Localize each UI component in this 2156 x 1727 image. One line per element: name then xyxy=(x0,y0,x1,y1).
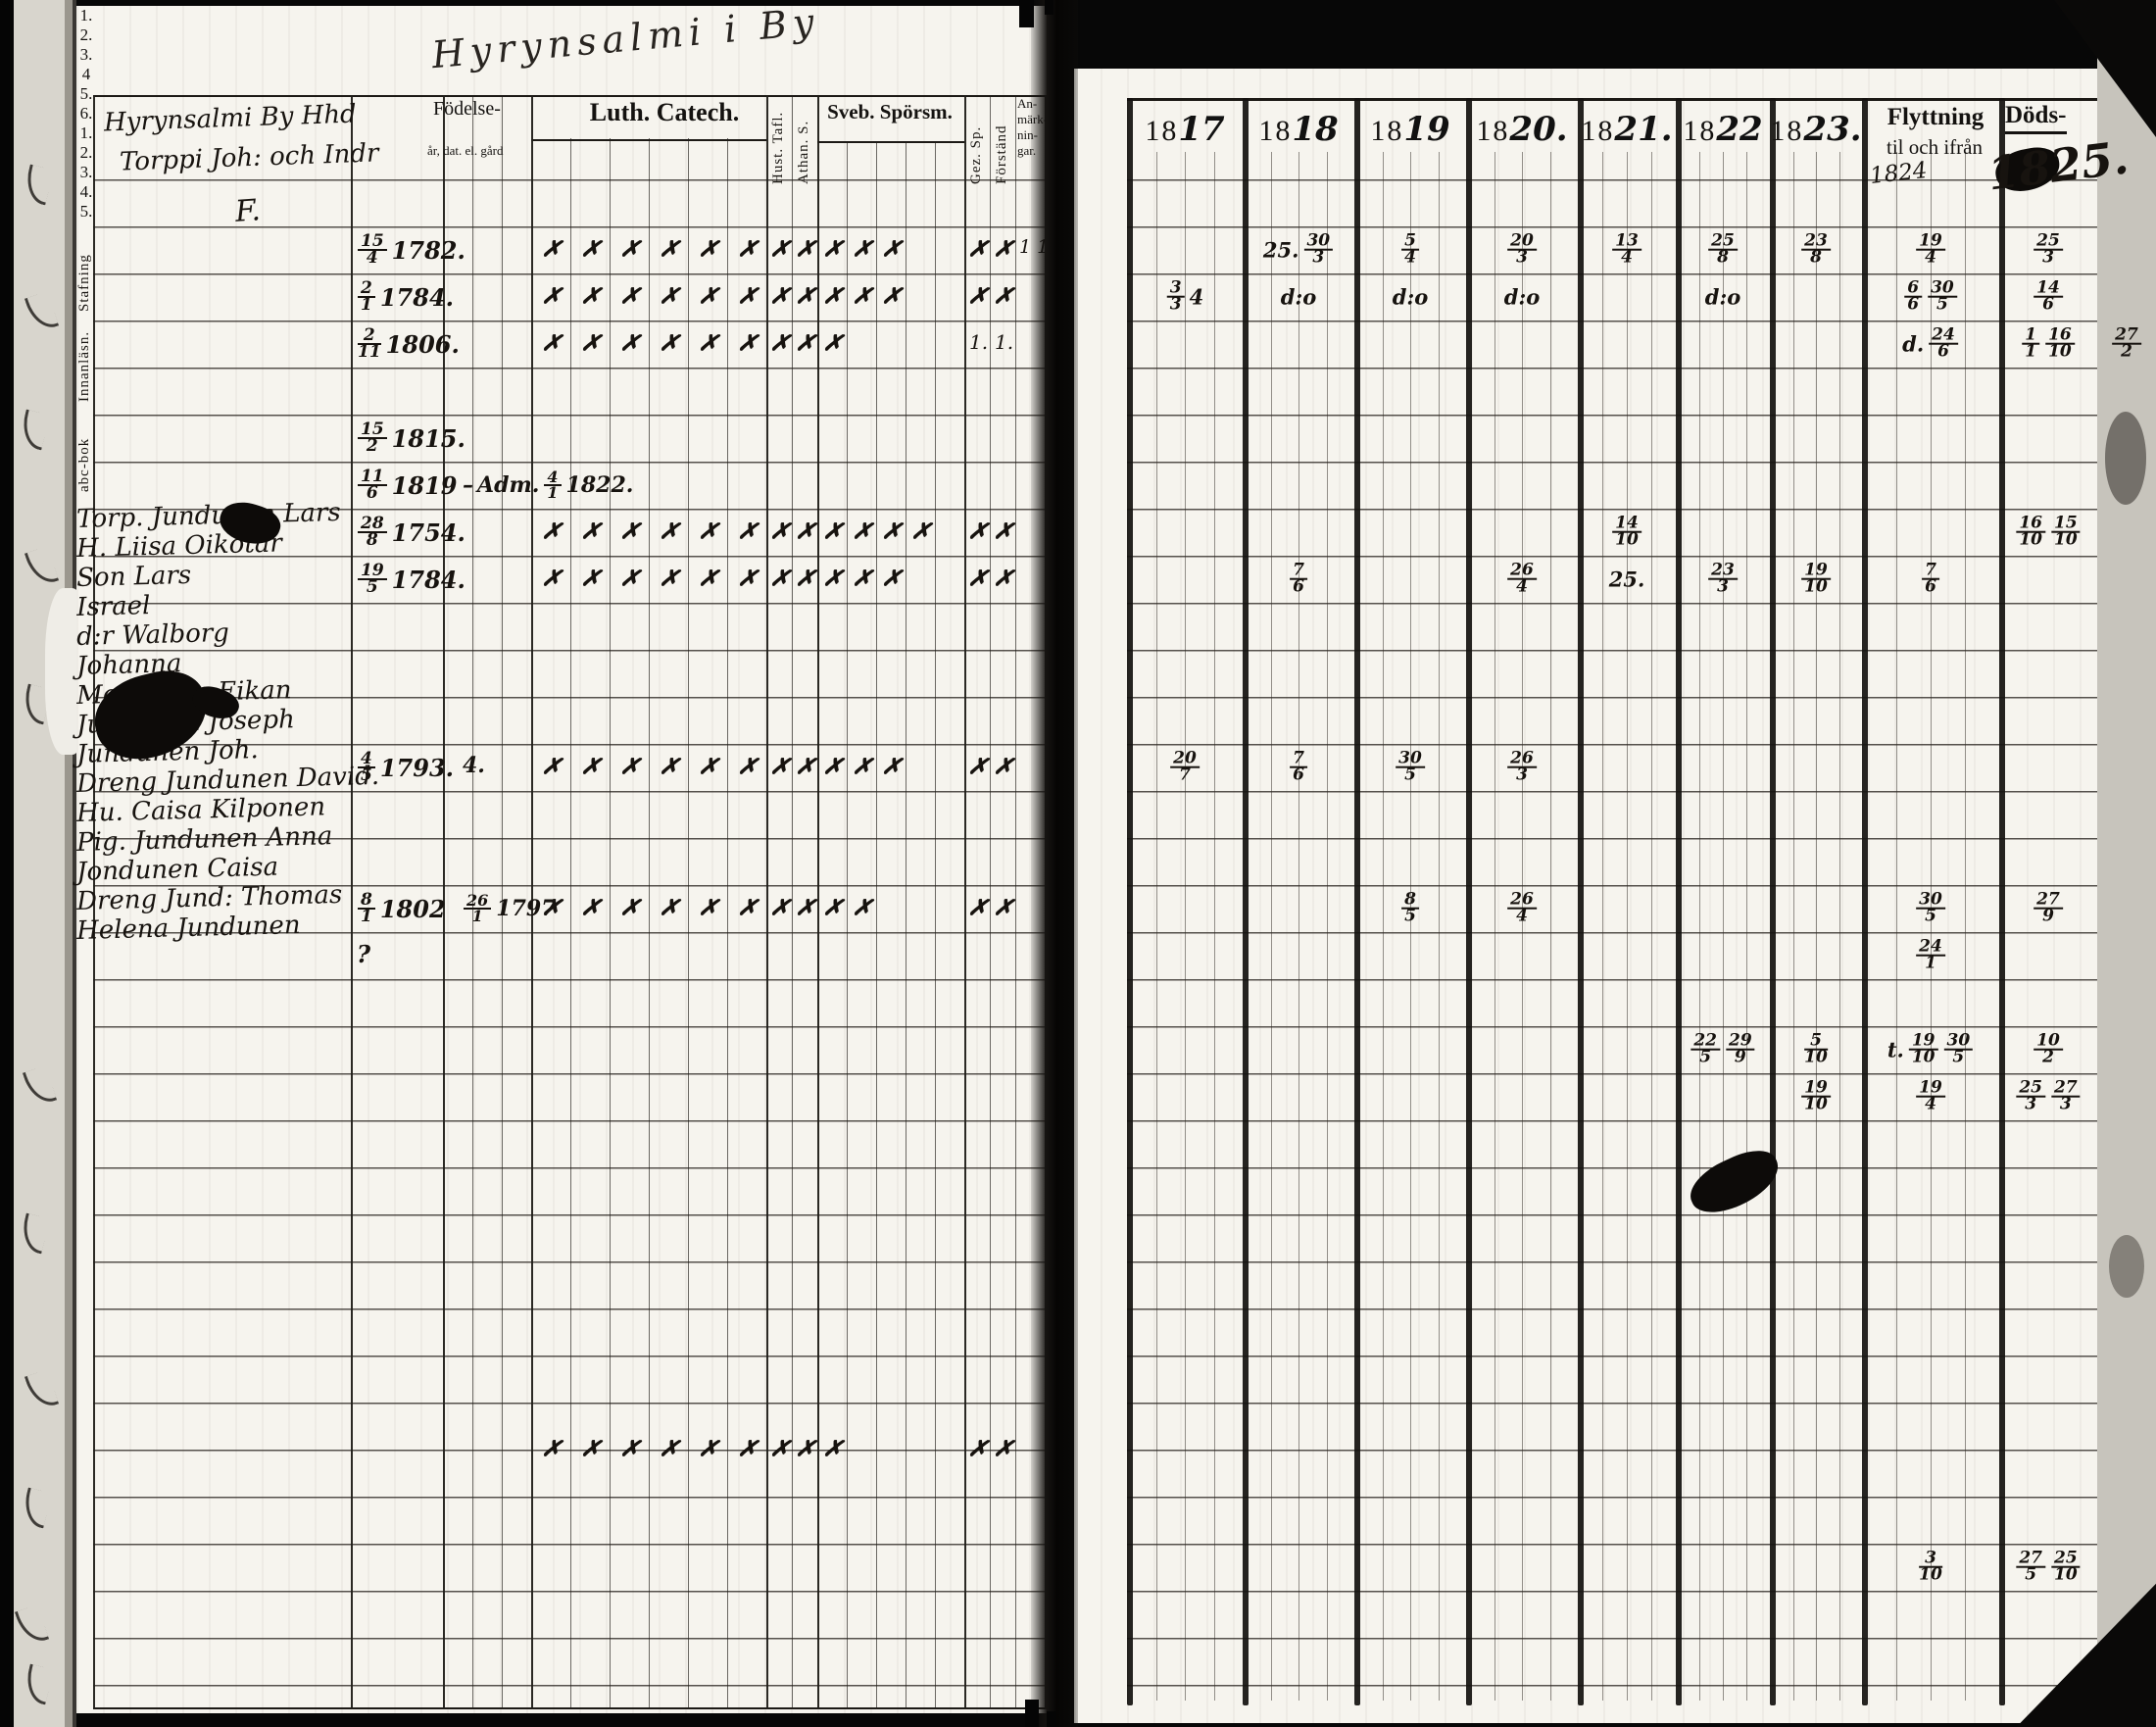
check-mark: ✗ xyxy=(737,327,759,358)
sveb-underline xyxy=(817,141,964,143)
date-entry: 194 xyxy=(1913,234,1948,267)
year-printed: 18 xyxy=(1476,115,1509,147)
date-entry: d:o xyxy=(1391,285,1430,310)
year-subcolumn-line xyxy=(1214,152,1215,1701)
year-subcolumn-line xyxy=(1298,152,1299,1701)
date-fraction: 45 xyxy=(358,752,375,784)
year-script: 21. xyxy=(1614,110,1672,149)
date-fraction: 207 xyxy=(1170,752,1200,784)
date-fraction: 33 xyxy=(1167,281,1185,314)
date-fraction: 261 xyxy=(464,894,491,924)
check-mark: ✗ xyxy=(822,516,845,546)
check-mark: ✗ xyxy=(659,1433,681,1463)
date-entry: 25.303 xyxy=(1261,234,1336,267)
check-mark: ✗ xyxy=(795,516,817,546)
year-column-header: 1821. xyxy=(1581,110,1672,149)
date-entry: 305 xyxy=(1393,752,1428,784)
check-mark: ✗ xyxy=(580,516,603,546)
check-mark: ✗ xyxy=(795,233,817,264)
left-column-line xyxy=(906,143,906,1709)
date-text: 1806. xyxy=(386,330,460,359)
year-column-header: 1820. xyxy=(1476,110,1567,149)
margin-scribble xyxy=(18,1213,50,1255)
date-entry: t.1910305 xyxy=(1886,1034,1976,1066)
date-entry: 134 xyxy=(1609,234,1644,267)
date-fraction: 275 xyxy=(2016,1552,2045,1584)
date-text: – xyxy=(463,472,473,498)
margin-scribble xyxy=(24,546,59,588)
date-fraction: 154 xyxy=(358,234,387,267)
check-mark: ✗ xyxy=(698,563,720,593)
date-fraction: 194 xyxy=(1916,1081,1945,1113)
margin-scribble xyxy=(22,1664,54,1705)
check-mark: ✗ xyxy=(822,1433,845,1463)
check-mark: ✗ xyxy=(769,280,792,311)
year-column-header: 1822 xyxy=(1683,110,1762,149)
date-text: 1754. xyxy=(392,518,465,547)
check-mark: ✗ xyxy=(737,516,759,546)
year-printed: 18 xyxy=(1581,115,1614,147)
date-entry: 194 xyxy=(1913,1081,1948,1113)
year-subcolumn-line xyxy=(1522,152,1523,1701)
date-fraction: 203 xyxy=(1507,234,1537,267)
date-text: 1784. xyxy=(392,566,465,594)
check-mark: ✗ xyxy=(769,563,792,593)
date-entry: 334 xyxy=(1164,281,1205,314)
skill-column-header-abc: abc-bok xyxy=(76,402,93,492)
date-text: 1782. xyxy=(392,236,465,265)
year-subcolumn-line xyxy=(1839,152,1840,1701)
person-birth-date: 2881754. xyxy=(355,517,467,549)
check-mark: ✗ xyxy=(580,233,603,264)
person-note: 4. xyxy=(461,753,487,778)
check-mark: ✗ xyxy=(698,327,720,358)
date-fraction: 1510 xyxy=(2051,517,2081,549)
gutter-clasp-top xyxy=(1019,0,1034,27)
date-fraction: 11 xyxy=(2022,328,2039,361)
date-fraction: 211 xyxy=(358,328,381,361)
date-fraction: 246 xyxy=(1929,328,1958,361)
date-fraction: 194 xyxy=(1916,234,1945,267)
year-subcolumn-line xyxy=(1965,152,1966,1701)
right-header-top-line xyxy=(1127,98,2097,101)
margin-scribble xyxy=(22,165,54,206)
date-text: d:o xyxy=(1504,285,1540,310)
margin-scribble xyxy=(23,1065,57,1108)
date-fraction: 66 xyxy=(1904,281,1922,314)
date-text: 25. xyxy=(1609,567,1645,592)
person-birth-date: 1541782. xyxy=(355,234,467,267)
date-entry: 25. xyxy=(1607,567,1647,592)
left-column-line xyxy=(876,143,877,1709)
date-fraction: 273 xyxy=(2051,1081,2081,1113)
date-entry: 146 xyxy=(2031,281,2066,314)
check-mark: ✗ xyxy=(541,280,563,311)
date-fraction: 264 xyxy=(1507,564,1537,596)
date-entry: 102 xyxy=(2031,1034,2066,1066)
year-script: 17 xyxy=(1178,110,1224,149)
household-heading-initial: F. xyxy=(234,193,262,229)
skill-column-header-st: Stafning xyxy=(76,222,93,312)
date-entry: 225299 xyxy=(1688,1034,1757,1066)
year-script: 22 xyxy=(1716,110,1762,149)
right-page: 1817181818191820.1821.18221823.25.303542… xyxy=(1074,69,2115,1723)
check-mark: ✗ xyxy=(795,563,817,593)
date-entry: d:o xyxy=(1703,285,1742,310)
date-text: 1793. xyxy=(380,754,454,782)
check-mark: ✗ xyxy=(619,327,642,358)
date-entry: d.246 xyxy=(1900,328,1961,361)
date-text: 1822. xyxy=(566,472,634,498)
date-text: d:o xyxy=(1281,285,1316,310)
date-entry: 203 xyxy=(1504,234,1540,267)
edge-blotch-2 xyxy=(2109,1235,2144,1298)
date-entry: 263 xyxy=(1504,752,1540,784)
date-fraction: 116 xyxy=(358,469,387,502)
date-fraction: 1910 xyxy=(1801,564,1831,596)
date-fraction: 288 xyxy=(358,517,387,549)
margin-scribble xyxy=(15,1604,49,1647)
check-mark: ✗ xyxy=(993,233,1015,264)
date-entry: 54 xyxy=(1398,234,1422,267)
year-subcolumn-line xyxy=(1410,152,1411,1701)
date-entry: 207 xyxy=(1167,752,1202,784)
date-text: d. xyxy=(1902,332,1924,357)
date-fraction: 253 xyxy=(2033,234,2063,267)
date-text: 1815. xyxy=(392,424,465,453)
year-subcolumn-line xyxy=(1327,152,1328,1701)
date-entry: 253273 xyxy=(2013,1081,2082,1113)
check-mark: ✗ xyxy=(852,563,874,593)
date-entry: 111610 xyxy=(2019,328,2078,361)
check-mark: ✗ xyxy=(993,563,1015,593)
year-column-header: 1823. xyxy=(1770,110,1861,149)
left-column-line xyxy=(847,143,848,1709)
check-mark: ✗ xyxy=(881,516,904,546)
year-column-header: 1818 xyxy=(1258,110,1338,149)
date-entry: 233 xyxy=(1705,564,1740,596)
margin-scribble xyxy=(20,1488,52,1529)
luth-number: 4 xyxy=(76,65,96,84)
date-fraction: 195 xyxy=(358,564,387,596)
date-entry: 305 xyxy=(1913,893,1948,925)
date-fraction: 134 xyxy=(1612,234,1641,267)
check-mark: ✗ xyxy=(881,563,904,593)
person-birth-date: 1521815. xyxy=(355,422,467,455)
year-subcolumn-line xyxy=(1793,152,1794,1701)
person-birth-date: ? xyxy=(355,940,372,968)
year-printed: 18 xyxy=(1258,115,1292,147)
person-birth-date: 811802 xyxy=(355,893,448,925)
date-fraction: 258 xyxy=(1708,234,1738,267)
year-subcolumn-line xyxy=(1439,152,1440,1701)
check-mark: ✗ xyxy=(659,280,681,311)
year-subcolumn-line xyxy=(1816,152,1817,1701)
check-mark: ✗ xyxy=(580,327,603,358)
check-mark: ✗ xyxy=(967,516,990,546)
date-fraction: 279 xyxy=(2033,893,2063,925)
date-text: 1819 xyxy=(392,471,458,500)
year-subcolumn-line xyxy=(1723,152,1724,1701)
date-text: 1784. xyxy=(380,283,454,312)
check-mark: ✗ xyxy=(659,233,681,264)
margin-scribbles xyxy=(0,0,76,1727)
luth-number: 1. xyxy=(76,6,96,25)
year-subcolumn-line xyxy=(1271,152,1272,1701)
check-mark: ✗ xyxy=(795,280,817,311)
edge-blotch-1 xyxy=(2105,412,2146,505)
check-mark: ✗ xyxy=(541,233,563,264)
check-mark: ✗ xyxy=(769,233,792,264)
year-column-separator xyxy=(1578,98,1584,1705)
date-fraction: 241 xyxy=(1916,940,1945,972)
date-text: 25. xyxy=(1263,238,1299,263)
date-entry: 85 xyxy=(1398,893,1422,925)
year-column-separator xyxy=(1243,98,1249,1705)
year-column-separator xyxy=(1770,98,1776,1705)
check-mark: ✗ xyxy=(769,516,792,546)
date-entry: 253 xyxy=(2031,234,2066,267)
year-subcolumn-line xyxy=(1746,152,1747,1701)
year-subcolumn-line xyxy=(1550,152,1551,1701)
check-mark: ✗ xyxy=(659,327,681,358)
date-entry: 241 xyxy=(1913,940,1948,972)
person-birth-date: 211784. xyxy=(355,281,456,314)
check-mark: ✗ xyxy=(737,563,759,593)
date-fraction: 305 xyxy=(1928,281,1957,314)
date-entry: 279 xyxy=(2031,893,2066,925)
check-mark: ✗ xyxy=(619,280,642,311)
year-column-separator xyxy=(1354,98,1360,1705)
forstand-header: Förständ xyxy=(994,94,1010,184)
check-mark: ✗ xyxy=(993,280,1015,311)
date-text: t. xyxy=(1887,1038,1904,1062)
check-mark: ✗ xyxy=(698,233,720,264)
check-mark: ✗ xyxy=(698,1433,720,1463)
flyttning-header-line1: Flyttning xyxy=(1872,104,1999,131)
year-subcolumn-line xyxy=(1651,152,1652,1701)
year-column-separator xyxy=(1127,98,1133,1705)
check-mark: ✗ xyxy=(967,233,990,264)
flyttning-header-line2: til och ifrån xyxy=(1866,135,2003,160)
date-entry: 264 xyxy=(1504,893,1540,925)
check-mark: ✗ xyxy=(967,563,990,593)
athan-s-header: Athan. S. xyxy=(796,94,812,184)
date-fraction: 310 xyxy=(1919,1552,1942,1584)
date-text: 4 xyxy=(1190,285,1204,310)
date-fraction: 81 xyxy=(358,893,375,925)
right-page-row-lines xyxy=(1127,179,2097,1699)
year-subcolumn-line xyxy=(1896,152,1897,1701)
gutter-clasp-bottom xyxy=(1025,1700,1039,1727)
person-note: –Adm.411822. xyxy=(461,470,635,501)
date-entry: d:o xyxy=(1502,285,1542,310)
check-mark: ✗ xyxy=(910,516,933,546)
check-mark: ✗ xyxy=(541,516,563,546)
year-subcolumn-line xyxy=(1699,152,1700,1701)
gutter-clasp-bottom2 xyxy=(1047,1711,1056,1727)
date-text: 4. xyxy=(463,753,485,778)
date-fraction: 299 xyxy=(1726,1034,1755,1066)
date-entry: 1910 xyxy=(1798,1081,1834,1113)
date-entry: 510 xyxy=(1801,1034,1831,1066)
date-entry: 264 xyxy=(1504,564,1540,596)
year-subcolumn-line xyxy=(1185,152,1186,1701)
year-subcolumn-line xyxy=(1602,152,1603,1701)
check-mark: ✗ xyxy=(852,516,874,546)
birth-column-header: Födelse- xyxy=(433,98,501,121)
year-printed: 18 xyxy=(1683,115,1716,147)
date-text: d:o xyxy=(1393,285,1428,310)
date-entry: 16101510 xyxy=(2013,517,2082,549)
check-mark: ✗ xyxy=(822,327,845,358)
date-fraction: 146 xyxy=(2033,281,2063,314)
skill-note: 1. xyxy=(995,330,1013,354)
check-mark: ✗ xyxy=(769,1433,792,1463)
date-entry: 2752510 xyxy=(2013,1552,2082,1584)
check-mark: ✗ xyxy=(580,280,603,311)
person-note: 2611797 xyxy=(461,894,559,924)
margin-scribble xyxy=(18,410,50,451)
person-birth-date: 2111806. xyxy=(355,328,462,361)
check-mark: ✗ xyxy=(993,1433,1015,1463)
check-mark: ✗ xyxy=(822,280,845,311)
check-mark: ✗ xyxy=(619,563,642,593)
check-mark: ✗ xyxy=(769,327,792,358)
date-fraction: 1910 xyxy=(1909,1034,1938,1066)
gutter-clasp-top2 xyxy=(1045,0,1053,15)
check-mark: ✗ xyxy=(967,280,990,311)
year-subcolumn-line xyxy=(1931,152,1932,1701)
date-fraction: 54 xyxy=(1401,234,1419,267)
check-mark: ✗ xyxy=(737,280,759,311)
check-mark: ✗ xyxy=(795,327,817,358)
date-fraction: 305 xyxy=(1916,893,1945,925)
date-entry: 76 xyxy=(1287,564,1310,596)
date-text: 1802 xyxy=(380,895,446,923)
date-fraction: 238 xyxy=(1801,234,1831,267)
sveb-sporsm-header: Sveb. Spörsm. xyxy=(813,100,966,124)
date-fraction: 263 xyxy=(1507,752,1537,784)
check-mark: ✗ xyxy=(881,280,904,311)
year-script: 23. xyxy=(1803,110,1861,149)
check-mark: ✗ xyxy=(698,280,720,311)
year-script: 18 xyxy=(1292,110,1338,149)
date-fraction: 1610 xyxy=(2045,328,2075,361)
check-mark: ✗ xyxy=(619,1433,642,1463)
margin-scribble xyxy=(24,1369,59,1411)
year-printed: 18 xyxy=(1145,115,1178,147)
date-entry: 310 xyxy=(1916,1552,1945,1584)
check-mark: ✗ xyxy=(967,1433,990,1463)
check-mark: ✗ xyxy=(580,1433,603,1463)
date-fraction: 1410 xyxy=(1612,517,1641,549)
date-fraction: 303 xyxy=(1303,234,1333,267)
skill-note: 1. xyxy=(969,330,988,354)
check-mark: ✗ xyxy=(619,516,642,546)
date-fraction: 85 xyxy=(1401,893,1419,925)
year-subcolumn-line xyxy=(1383,152,1384,1701)
year-column-separator xyxy=(1862,98,1868,1705)
date-fraction: 76 xyxy=(1290,752,1307,784)
date-entry: d:o xyxy=(1279,285,1318,310)
date-fraction: 305 xyxy=(1396,752,1425,784)
date-fraction: 152 xyxy=(358,422,387,455)
date-text: ? xyxy=(357,940,370,968)
check-mark: ✗ xyxy=(852,280,874,311)
date-fraction: 272 xyxy=(2112,328,2141,361)
luth-number: 3. xyxy=(76,45,96,65)
year-subcolumn-line xyxy=(1494,152,1495,1701)
year-script: 20. xyxy=(1509,110,1567,149)
left-page: 1.2.3.45.6.1.2.3.4.5.StafningInnanläsn.a… xyxy=(76,6,1047,1713)
hust-tafl-header: Hust. Tafl. xyxy=(770,94,787,184)
year-column-header: 1817 xyxy=(1145,110,1224,149)
date-fraction: 1910 xyxy=(1801,1081,1831,1113)
person-birth-date: 451793. xyxy=(355,752,456,784)
year-column-separator xyxy=(1676,98,1682,1705)
right-page-outer-strip xyxy=(2097,0,2156,1727)
person-birth-date: 1951784. xyxy=(355,564,467,596)
date-fraction: 1610 xyxy=(2016,517,2045,549)
date-fraction: 510 xyxy=(1804,1034,1828,1066)
date-text: Adm. xyxy=(477,472,539,498)
date-entry: 272 xyxy=(2109,328,2144,361)
skill-column-header-in: Innanläsn. xyxy=(76,312,93,402)
date-fraction: 2510 xyxy=(2051,1552,2081,1584)
check-mark: ✗ xyxy=(659,516,681,546)
check-mark: ✗ xyxy=(737,233,759,264)
check-mark: ✗ xyxy=(541,327,563,358)
date-fraction: 253 xyxy=(2016,1081,2045,1113)
left-column-line xyxy=(935,143,936,1709)
date-fraction: 76 xyxy=(1290,564,1307,596)
luth-catech-header: Luth. Catech. xyxy=(547,98,782,127)
person-birth-date: 1161819 xyxy=(355,469,459,502)
date-fraction: 76 xyxy=(1922,564,1939,596)
date-fraction: 264 xyxy=(1507,893,1537,925)
check-mark: ✗ xyxy=(852,233,874,264)
date-fraction: 305 xyxy=(1944,1034,1974,1066)
check-mark: ✗ xyxy=(659,563,681,593)
gez-sp-header: Gez. Sp. xyxy=(968,94,985,184)
check-mark: ✗ xyxy=(737,1433,759,1463)
year-column-separator xyxy=(1466,98,1472,1705)
date-fraction: 233 xyxy=(1708,564,1738,596)
left-page-bottom-line xyxy=(93,1707,1045,1709)
birth-column-subheader: år, dat. el. gård xyxy=(427,143,517,159)
check-mark: ✗ xyxy=(580,563,603,593)
year-script: 19 xyxy=(1403,110,1449,149)
date-entry: 76 xyxy=(1287,752,1310,784)
check-mark: ✗ xyxy=(881,233,904,264)
check-mark: ✗ xyxy=(619,233,642,264)
date-entry: 258 xyxy=(1705,234,1740,267)
year-printed: 18 xyxy=(1770,115,1803,147)
date-entry: 1410 xyxy=(1609,517,1644,549)
year-subcolumn-line xyxy=(1156,152,1157,1701)
date-fraction: 102 xyxy=(2033,1034,2063,1066)
date-entry: 76 xyxy=(1919,564,1942,596)
scanned-register-spread: 1.2.3.45.6.1.2.3.4.5.StafningInnanläsn.a… xyxy=(0,0,2156,1727)
date-entry: 1910 xyxy=(1798,564,1834,596)
check-mark: ✗ xyxy=(541,1433,563,1463)
check-mark: ✗ xyxy=(822,563,845,593)
year-printed: 18 xyxy=(1370,115,1403,147)
date-fraction: 41 xyxy=(544,470,561,501)
date-entry: 66305 xyxy=(1901,281,1960,314)
book-gutter xyxy=(1031,0,1078,1727)
